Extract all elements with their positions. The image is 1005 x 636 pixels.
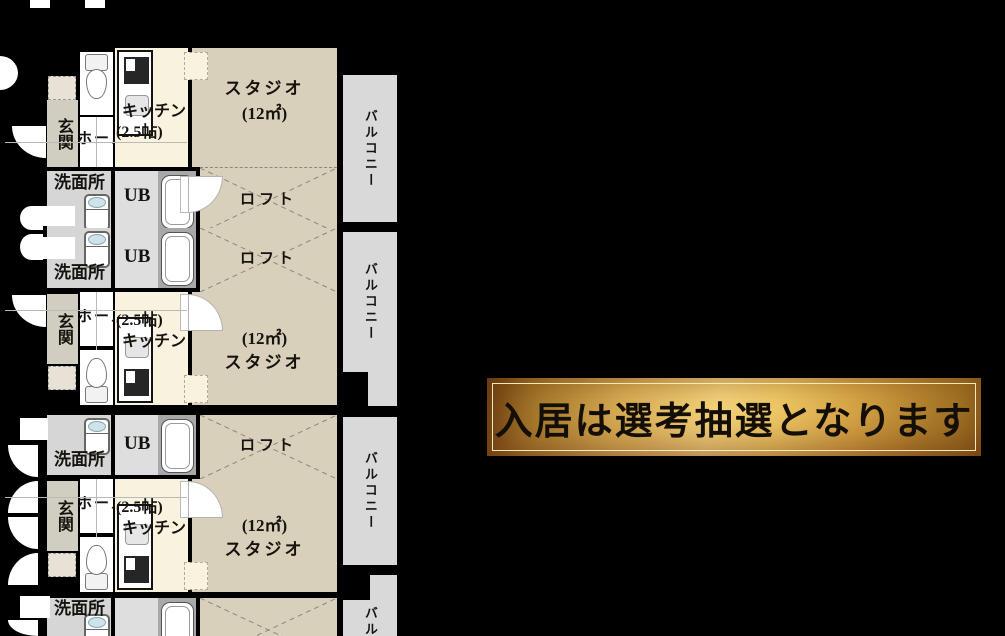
meter-box — [43, 237, 75, 259]
balcony: バルコニー — [343, 600, 397, 636]
unit-bath-label: UB — [124, 434, 150, 454]
toilet-icon — [85, 54, 108, 100]
toilet-room — [80, 52, 113, 115]
floorplan-unit-4: 洗面所 バルコニー — [0, 598, 400, 636]
meter-box-door-arc — [20, 206, 43, 230]
studio-size-label: (12㎡) — [242, 105, 287, 123]
unit-bath-label: UB — [124, 186, 150, 206]
washroom-label: 洗面所 — [54, 264, 105, 282]
kitchen-label: キッチン — [122, 521, 186, 538]
unit-bath-room: UB — [115, 415, 196, 475]
studio-label: スタジオ — [225, 80, 305, 98]
loft-ladder-box — [184, 562, 208, 590]
page: 玄関 ホール キッチン (2.5帖) スタジオ (12㎡) — [0, 0, 1005, 636]
balcony: バルコニー — [343, 75, 397, 222]
loft-dashed-marks — [200, 598, 337, 636]
floorplan-unit-1: 玄関 ホール キッチン (2.5帖) スタジオ (12㎡) — [0, 48, 400, 232]
entrance-label: 玄関 — [54, 313, 71, 345]
notice-banner-text: 入居は選考抽選となります — [495, 390, 974, 445]
toilet-icon — [85, 357, 108, 403]
kitchen-counter — [117, 317, 153, 403]
balcony-label: バルコニー — [363, 262, 377, 342]
balcony-label: バルコニー — [363, 109, 377, 189]
loft-area: ロフト — [200, 415, 337, 480]
loft-label: ロフト — [240, 193, 297, 209]
washroom: 洗面所 — [47, 598, 111, 636]
kitchen-size-label: (2.5帖) — [116, 500, 163, 517]
bath-area — [158, 228, 196, 288]
kitchen-counter — [117, 504, 153, 590]
bath-area — [158, 598, 196, 636]
bathtub-icon — [161, 602, 194, 636]
shoe-cabinet-box — [48, 553, 76, 577]
loft-ladder-box — [184, 52, 208, 80]
door-guide-line — [96, 479, 97, 537]
meter-box — [20, 596, 50, 618]
entrance-label: 玄関 — [54, 118, 71, 150]
meter-box — [20, 418, 48, 440]
balcony-step — [368, 372, 397, 406]
loft-ladder-box — [184, 375, 208, 403]
toilet-room — [80, 350, 113, 405]
studio-label: スタジオ — [225, 354, 305, 372]
unit-bath-room: UB — [115, 228, 196, 288]
studio-room: スタジオ (12㎡) — [192, 48, 337, 167]
stove-icon — [124, 57, 149, 84]
meter-box-door-arc — [20, 234, 43, 260]
balcony: バルコニー — [343, 417, 397, 565]
washroom-label: 洗面所 — [54, 600, 105, 618]
door-guide-line — [96, 117, 97, 167]
studio-label: スタジオ — [225, 541, 305, 559]
bathtub-icon — [161, 419, 194, 473]
kitchen-size-label: (2.5帖) — [116, 125, 163, 142]
kitchen-room: (2.5帖) キッチン — [115, 479, 188, 592]
unit-bath-label: UB — [124, 247, 150, 267]
entrance-label: 玄関 — [54, 500, 71, 532]
toilet-icon — [85, 544, 108, 590]
loft-label: ロフト — [240, 439, 297, 455]
studio-size-label: (12㎡) — [242, 330, 287, 348]
toilet-room — [80, 537, 113, 592]
kitchen-size-label: (2.5帖) — [116, 313, 163, 330]
notice-banner: 入居は選考抽選となります — [487, 378, 981, 456]
meter-box — [43, 206, 75, 226]
kitchen-label: キッチン — [122, 334, 186, 351]
wall-fragment — [30, 0, 50, 8]
studio-size-label: (12㎡) — [242, 517, 287, 535]
bathtub-icon — [161, 232, 194, 286]
door-guide-line — [96, 292, 97, 350]
shoe-cabinet-box — [48, 366, 76, 390]
washroom-label: 洗面所 — [54, 451, 105, 469]
unit-bath-room — [115, 598, 196, 636]
washing-machine-icon — [84, 194, 110, 231]
entrance-room: 玄関 — [47, 294, 78, 364]
shoe-cabinet-box — [48, 76, 76, 100]
balcony-step — [370, 575, 397, 601]
stove-icon — [124, 556, 149, 583]
entrance-room: 玄関 — [47, 481, 78, 551]
kitchen-room: (2.5帖) キッチン — [115, 292, 188, 405]
stove-icon — [124, 369, 149, 396]
washroom-label: 洗面所 — [54, 174, 105, 192]
balcony-label: バルコニー — [363, 606, 377, 636]
balcony: バルコニー — [343, 232, 397, 372]
bath-area — [158, 415, 196, 475]
wall-fragment — [85, 0, 105, 8]
washroom: 洗面所 — [47, 415, 111, 475]
kitchen-room: キッチン (2.5帖) — [115, 48, 188, 167]
kitchen-label: キッチン — [122, 104, 186, 121]
loft-label: ロフト — [240, 252, 297, 268]
floorplan: 玄関 ホール キッチン (2.5帖) スタジオ (12㎡) — [0, 0, 410, 636]
balcony-label: バルコニー — [363, 451, 377, 531]
entrance-room: 玄関 — [47, 100, 78, 167]
floorplan-unit-3: 洗面所 UB ロフト ホール 玄関 — [0, 415, 400, 592]
loft-area — [200, 598, 337, 636]
loft-area: ロフト — [200, 228, 337, 293]
